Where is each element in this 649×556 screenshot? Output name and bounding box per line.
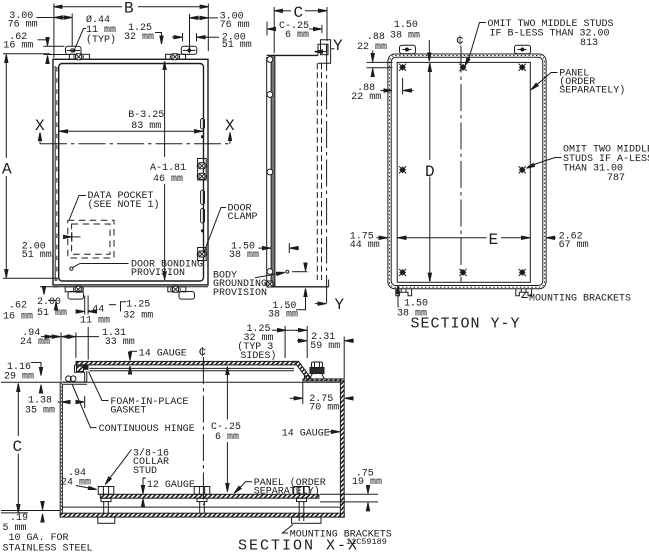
svg-text:38 mm: 38 mm xyxy=(390,30,420,41)
svg-text:83 mm: 83 mm xyxy=(131,121,161,132)
svg-text:.62: .62 xyxy=(9,301,27,312)
svg-text:B-3.25: B-3.25 xyxy=(128,110,164,121)
svg-text:76 mm: 76 mm xyxy=(8,19,38,30)
svg-text:Y: Y xyxy=(333,37,343,55)
svg-text:787: 787 xyxy=(607,173,625,184)
svg-text:X: X xyxy=(35,117,45,135)
svg-text:6 mm: 6 mm xyxy=(285,30,309,41)
svg-text:44 mm: 44 mm xyxy=(350,240,380,251)
svg-text:14 GAUGE: 14 GAUGE xyxy=(139,348,187,359)
svg-text:67 mm: 67 mm xyxy=(559,240,589,251)
svg-text:CONTINUOUS HINGE: CONTINUOUS HINGE xyxy=(99,424,195,435)
svg-text:38 mm: 38 mm xyxy=(229,250,259,261)
svg-text:1.50: 1.50 xyxy=(394,20,418,31)
svg-text:PROVISION: PROVISION xyxy=(213,288,267,299)
svg-text:C: C xyxy=(294,4,304,22)
svg-text:STAINLESS STEEL: STAINLESS STEEL xyxy=(3,543,93,554)
svg-text:CLAMP: CLAMP xyxy=(228,212,258,223)
svg-text:PROVISION: PROVISION xyxy=(131,268,185,279)
svg-text:46 mm: 46 mm xyxy=(153,174,183,185)
svg-text:813: 813 xyxy=(580,38,598,49)
svg-text:STUD: STUD xyxy=(133,466,157,477)
svg-text:D: D xyxy=(425,163,435,181)
svg-text:14 GAUGE: 14 GAUGE xyxy=(282,428,330,439)
svg-text:29 mm: 29 mm xyxy=(4,371,34,382)
svg-text:51 mm: 51 mm xyxy=(22,250,52,261)
svg-text:SIDES): SIDES) xyxy=(240,350,276,362)
svg-text:1.25: 1.25 xyxy=(126,300,150,311)
svg-text:(SEE NOTE 1): (SEE NOTE 1) xyxy=(88,199,160,211)
svg-text:A: A xyxy=(2,161,12,179)
svg-text:SECTION X-X: SECTION X-X xyxy=(238,538,359,555)
svg-text:C: C xyxy=(13,438,23,456)
svg-text:32 mm: 32 mm xyxy=(123,311,153,322)
svg-text:16 mm: 16 mm xyxy=(3,41,33,52)
svg-text:6 mm: 6 mm xyxy=(215,432,239,443)
svg-text:MOUNTING BRACKETS: MOUNTING BRACKETS xyxy=(529,294,631,305)
svg-text:12 GAUGE: 12 GAUGE xyxy=(147,480,195,491)
svg-text:A-1.81: A-1.81 xyxy=(150,163,186,174)
svg-text:¢: ¢ xyxy=(456,33,464,48)
svg-text:.44: .44 xyxy=(86,305,104,316)
svg-text:GASKET: GASKET xyxy=(110,406,146,417)
svg-text:2.00: 2.00 xyxy=(37,297,61,308)
svg-text:SEPARATELY): SEPARATELY) xyxy=(559,85,625,97)
svg-text:11 mm: 11 mm xyxy=(80,316,110,327)
svg-text:24 mm: 24 mm xyxy=(61,477,91,488)
svg-text:59 mm: 59 mm xyxy=(310,341,340,352)
svg-text:16 mm: 16 mm xyxy=(3,312,33,323)
svg-text:70 mm: 70 mm xyxy=(309,403,339,414)
svg-text:22 mm: 22 mm xyxy=(357,42,387,53)
svg-text:5 mm: 5 mm xyxy=(3,523,27,534)
svg-text:SEPARATELY): SEPARATELY) xyxy=(254,486,320,498)
svg-text:Y: Y xyxy=(335,296,345,314)
svg-text:B: B xyxy=(124,0,134,18)
svg-text:24 mm: 24 mm xyxy=(20,337,50,348)
svg-text:76 mm: 76 mm xyxy=(220,20,250,31)
svg-text:38 mm: 38 mm xyxy=(268,309,298,320)
svg-text:SECTION Y-Y: SECTION Y-Y xyxy=(411,316,521,333)
svg-text:51 mm: 51 mm xyxy=(222,40,252,51)
svg-text:(TYP): (TYP) xyxy=(86,34,116,46)
svg-text:32 mm: 32 mm xyxy=(124,32,154,43)
svg-text:22 mm: 22 mm xyxy=(351,92,381,103)
svg-text:E: E xyxy=(489,231,499,249)
svg-text:51 mm: 51 mm xyxy=(37,308,67,319)
svg-text:X: X xyxy=(225,117,235,135)
svg-text:¢: ¢ xyxy=(199,345,207,360)
svg-text:19 mm: 19 mm xyxy=(352,477,382,488)
svg-text:35 mm: 35 mm xyxy=(25,406,55,417)
svg-text:33 mm: 33 mm xyxy=(105,337,135,348)
